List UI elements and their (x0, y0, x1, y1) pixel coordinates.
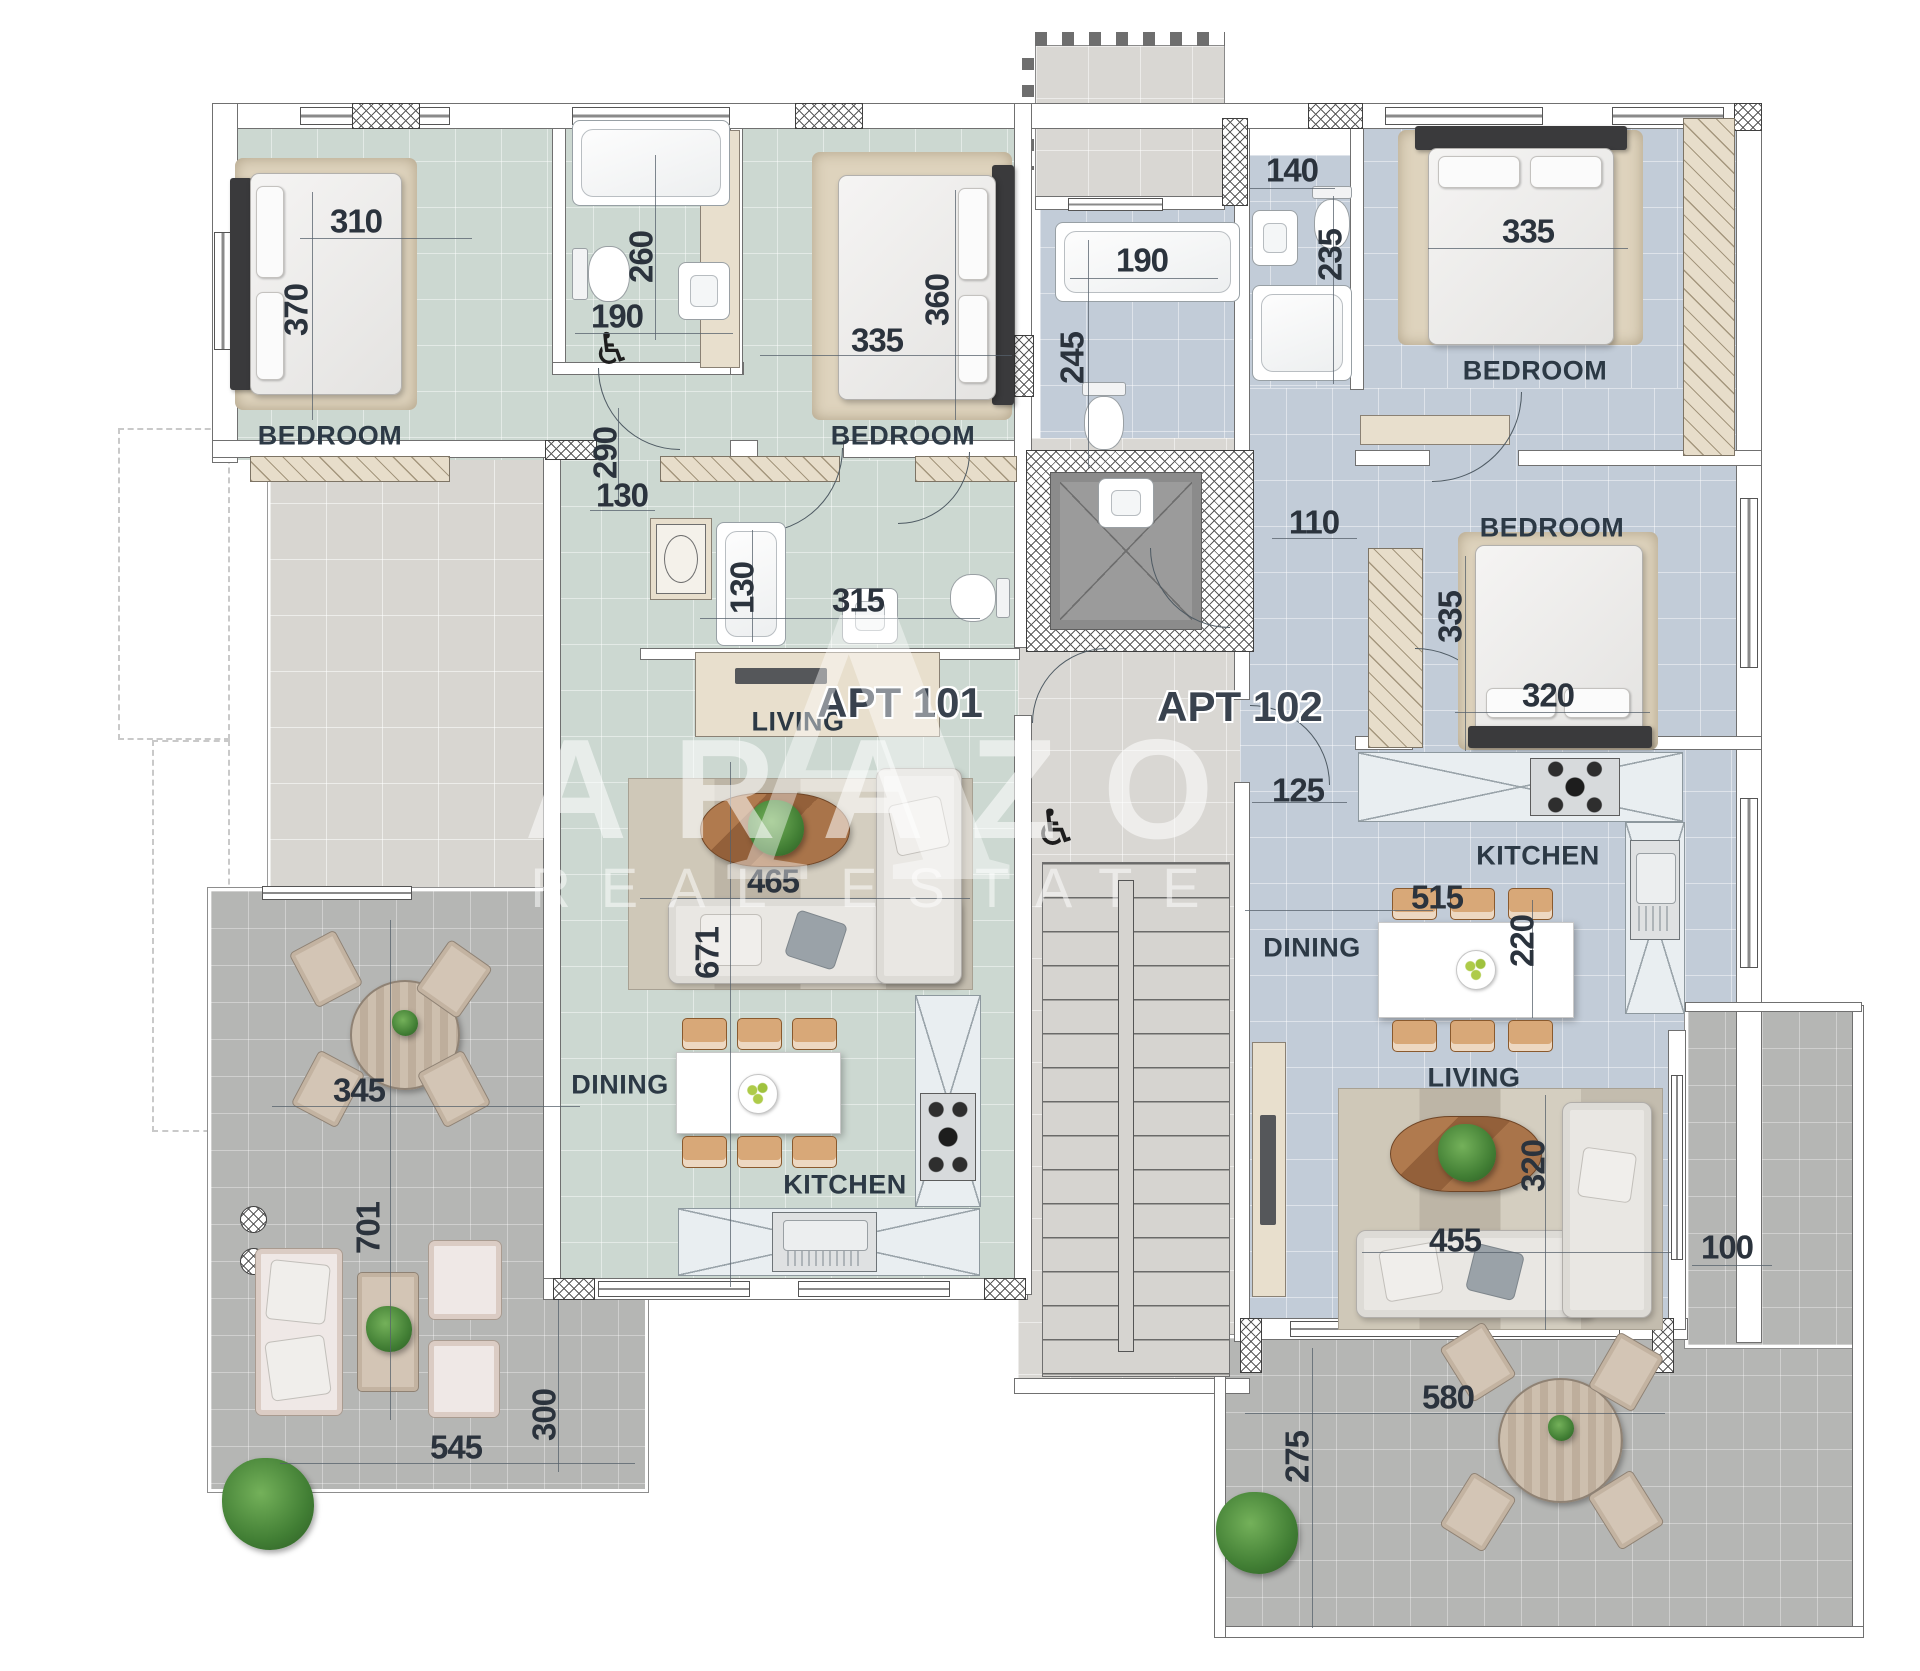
dim-260: 260 (625, 231, 658, 283)
pillow (256, 186, 284, 278)
dim-line (1545, 1095, 1546, 1330)
dim-370: 370 (280, 284, 313, 336)
bathtub-bathB (1252, 285, 1352, 381)
washing-machine (656, 524, 706, 594)
accessible-icon: ♿ (592, 328, 631, 372)
label-apt101-bedroom1: BEDROOM (258, 423, 403, 450)
label-apt101-dining: DINING (571, 1072, 669, 1099)
patio-floor (268, 445, 555, 895)
label-apt102-living: LIVING (1427, 1065, 1520, 1092)
dining-chair (792, 1136, 837, 1168)
dim-310: 310 (330, 205, 382, 238)
pillar (984, 1278, 1026, 1300)
staircase (1042, 862, 1230, 1377)
label-apt101-kitchen: KITCHEN (783, 1172, 907, 1199)
pillar (352, 103, 420, 129)
dim-190b: 190 (1116, 244, 1168, 277)
dim-515: 515 (1411, 881, 1463, 914)
kitchen-sink-apt102 (1630, 840, 1680, 940)
plant-coffee-table (1438, 1124, 1496, 1182)
headboard-bed1 (230, 178, 252, 390)
label-apt102-bedroom1: BEDROOM (1463, 358, 1608, 385)
label-apt102-bedroom2: BEDROOM (1480, 515, 1625, 542)
toilet-bathA (1084, 396, 1124, 450)
window-apt101-south-2 (798, 1281, 950, 1297)
table-pot (1548, 1415, 1574, 1441)
dim-line (390, 920, 391, 1420)
floor-plan: ♿ (0, 0, 1920, 1671)
label-apt101-bedroom2: BEDROOM (831, 423, 976, 450)
dim-235: 235 (1314, 229, 1347, 281)
dim-671: 671 (691, 927, 724, 979)
dim-190a: 190 (591, 300, 643, 333)
outdoor-chair (428, 1240, 502, 1320)
fruit-plate (738, 1074, 778, 1114)
cushion (264, 1334, 332, 1402)
label-apt102-kitchen: KITCHEN (1476, 843, 1600, 870)
pillar (553, 1278, 595, 1300)
window-right-2 (1740, 798, 1758, 968)
dim-320a: 320 (1522, 679, 1574, 712)
sofa-apt102-arm (1562, 1102, 1652, 1318)
headboard-apt102-bed2 (1468, 726, 1652, 748)
wall-bed1-bath1 (552, 128, 566, 373)
dim-110: 110 (1289, 506, 1339, 539)
dim-line (272, 1106, 580, 1107)
dim-701: 701 (352, 1202, 385, 1254)
kitchen-sink-apt101 (772, 1212, 877, 1272)
dim-line (1245, 910, 1433, 911)
pillow (1530, 156, 1602, 188)
dim-580: 580 (1422, 1381, 1474, 1414)
wall-right (1736, 103, 1762, 1343)
terrace-plant-large (222, 1458, 314, 1550)
property-line-dashed (118, 428, 230, 740)
dim-140: 140 (1266, 154, 1318, 187)
wall-terraceR-west (1214, 1335, 1226, 1638)
dining-chair (792, 1018, 837, 1050)
dim-220: 220 (1506, 915, 1539, 967)
terrace-plant-large (1216, 1492, 1298, 1574)
dim-335a: 335 (851, 324, 903, 357)
window-living102-east (1671, 1075, 1683, 1260)
dim-line (1333, 196, 1334, 384)
label-apt102-dining: DINING (1263, 935, 1361, 962)
wardrobe-bed1 (250, 456, 450, 482)
dining-chair (1450, 1020, 1495, 1052)
window-patio (262, 886, 412, 900)
dim-245: 245 (1056, 332, 1089, 384)
dim-line (1362, 1252, 1672, 1253)
window-apt101-south-1 (598, 1281, 750, 1297)
pillar (795, 103, 863, 129)
dim-290: 290 (589, 427, 622, 479)
dim-335b: 335 (1502, 215, 1554, 248)
pillow (958, 295, 988, 383)
dim-line (1465, 556, 1466, 751)
dim-line (1312, 1348, 1313, 1628)
cushion (1577, 1146, 1637, 1203)
watermark-brand: ARAZO (525, 719, 1260, 861)
window-platform (1068, 198, 1163, 211)
bathtub-bath1 (572, 120, 730, 206)
outdoor-chair (428, 1340, 500, 1418)
dining-chair (1392, 1020, 1437, 1052)
terrace-right-strip (1685, 1008, 1862, 1348)
dim-320b: 320 (1517, 1140, 1550, 1192)
stove-apt102 (1530, 758, 1620, 816)
pillar-round (240, 1206, 267, 1233)
dining-chair (737, 1018, 782, 1050)
pillar (1734, 103, 1762, 131)
pillar (1222, 118, 1248, 206)
dim-360: 360 (921, 274, 954, 326)
dim-345: 345 (333, 1074, 385, 1107)
sink-bathB (1252, 210, 1298, 266)
wall-terraceR-north (1685, 1002, 1862, 1012)
tv-apt102 (1260, 1115, 1276, 1225)
dim-100: 100 (1701, 1231, 1753, 1264)
pillow (1438, 156, 1520, 188)
pillar (1240, 1318, 1262, 1373)
dim-125: 125 (1272, 774, 1324, 807)
dim-455: 455 (1429, 1224, 1481, 1257)
wall-terraceR-south (1222, 1626, 1864, 1638)
fruit-plate (1456, 950, 1496, 990)
window-top-3 (1385, 107, 1543, 125)
wall-apt102-bed1-south-a (1355, 450, 1430, 466)
dim-545: 545 (430, 1431, 482, 1464)
sink-bath1 (678, 262, 730, 320)
table-plant (366, 1306, 412, 1352)
table-pot (392, 1010, 418, 1036)
wardrobe-apt102-bed1 (1683, 118, 1735, 456)
stair-rail (1118, 880, 1134, 1352)
cushion (265, 1259, 331, 1325)
dining-chair (737, 1136, 782, 1168)
dim-300: 300 (528, 1389, 561, 1441)
pillar (1014, 335, 1034, 397)
headboard-apt102-bed1 (1415, 126, 1627, 150)
dim-line (300, 238, 472, 239)
dining-chair (682, 1136, 727, 1168)
dim-line (558, 1300, 559, 1472)
stove-apt101 (920, 1093, 976, 1181)
sink-bathA (1098, 478, 1154, 528)
toilet-tank (572, 248, 588, 300)
pillow (958, 188, 988, 280)
apt102-floor-east (1685, 745, 1740, 1015)
kitchen-counter-apt102-north (1358, 752, 1683, 822)
dim-130a: 130 (596, 479, 648, 512)
wall-bathB-east (1350, 128, 1364, 390)
dim-335c: 335 (1434, 591, 1467, 643)
dining-chair (682, 1018, 727, 1050)
watermark-tagline: REAL ESTATE (530, 860, 1229, 916)
pillar (1308, 103, 1363, 129)
window-right-1 (1740, 498, 1758, 668)
dining-chair (1508, 1020, 1553, 1052)
entrance-teeth-top (1035, 32, 1225, 46)
dim-275: 275 (1281, 1431, 1314, 1483)
wall-terraceR-east (1852, 1005, 1864, 1638)
